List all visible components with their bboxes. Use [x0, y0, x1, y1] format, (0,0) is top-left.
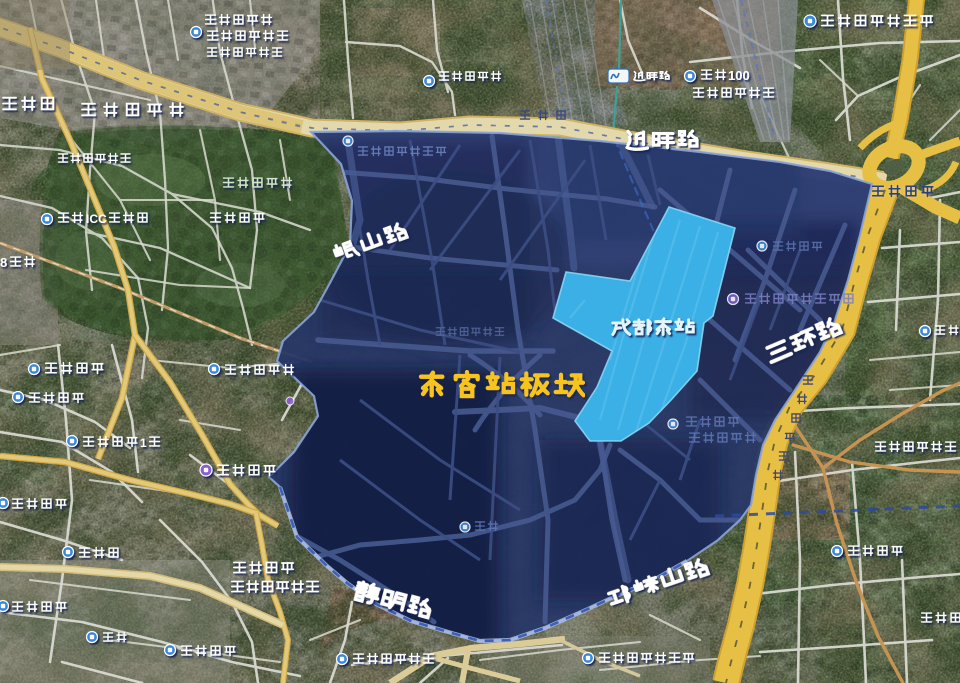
svg-text:1: 1 [140, 436, 147, 450]
svg-text:100: 100 [728, 68, 750, 83]
svg-text:8: 8 [0, 255, 7, 270]
svg-text:ICC: ICC [86, 212, 107, 226]
